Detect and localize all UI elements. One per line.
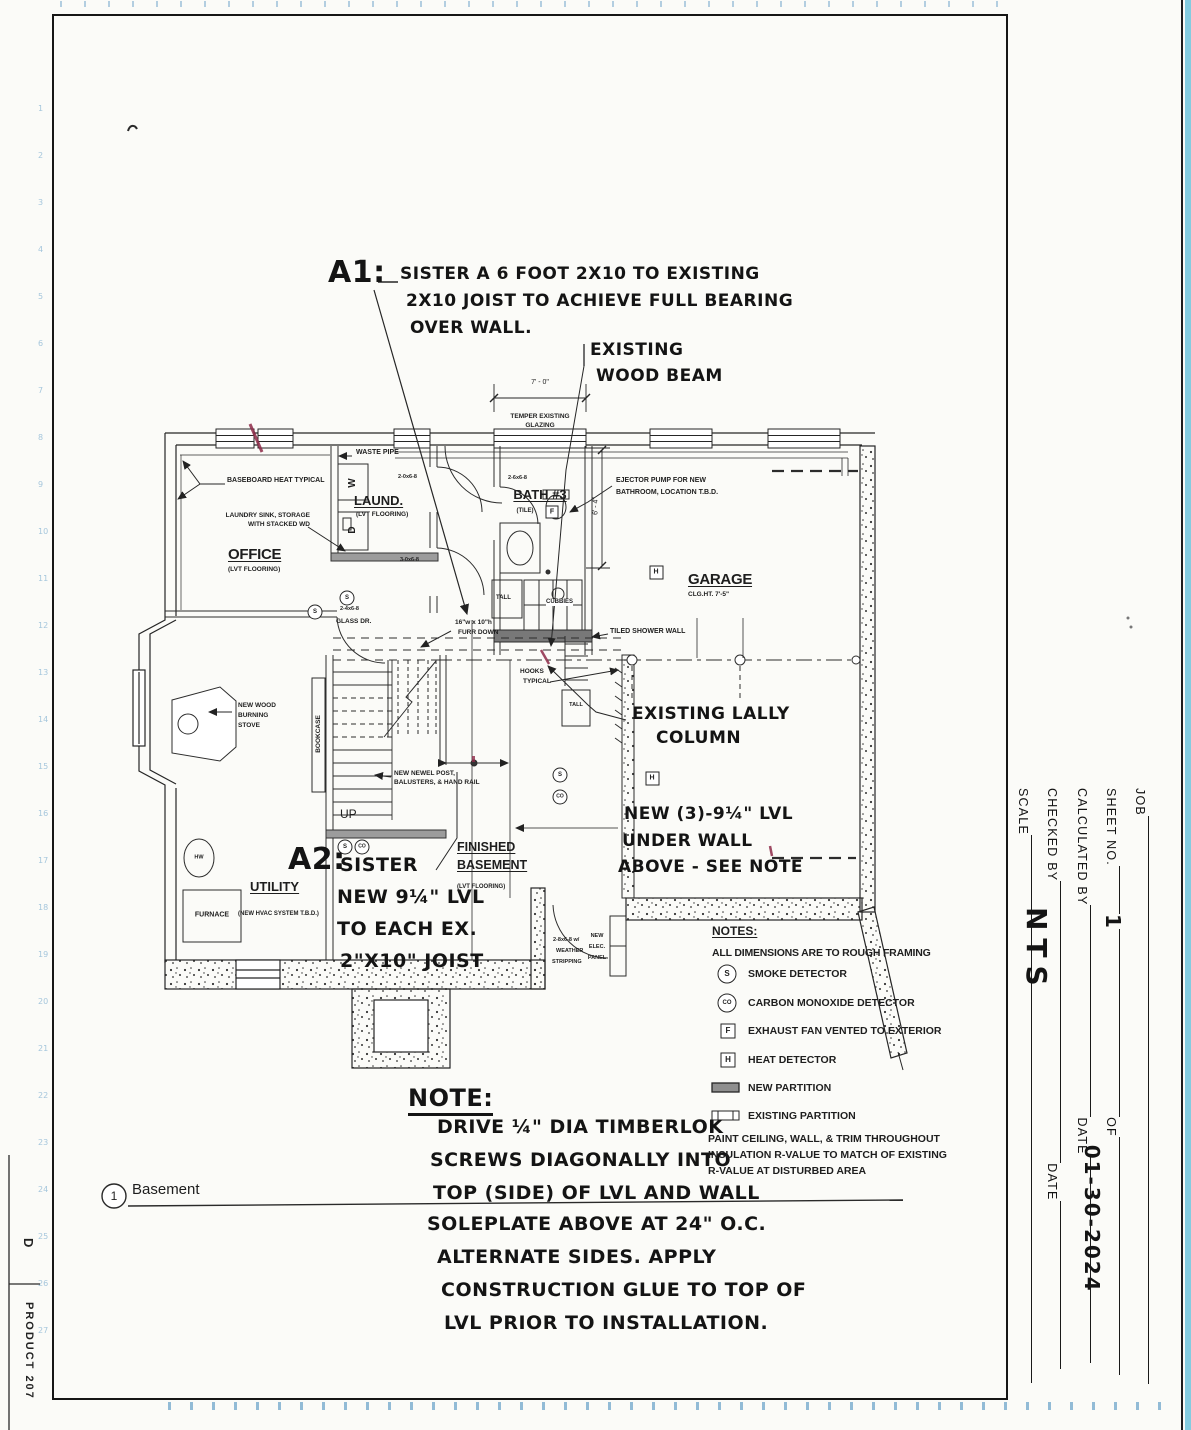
legend-co-label: CARBON MONOXIDE DETECTOR bbox=[748, 997, 915, 1009]
room-bath: BATH #3 bbox=[513, 488, 566, 503]
stove-label-2: BURNING bbox=[238, 712, 268, 719]
note-line-1: DRIVE ¼" DIA TIMBERLOK bbox=[437, 1118, 723, 1137]
dryer-label: D bbox=[348, 526, 358, 533]
a2-note-line-1: SISTER bbox=[340, 856, 418, 875]
exhaust-fan-icon: F bbox=[550, 509, 554, 516]
room-finished-1: FINISHED bbox=[457, 840, 515, 854]
newel-label-2: BALUSTERS, & HAND RAIL bbox=[394, 779, 480, 786]
furr-down-label-1: 16"w x 10"h bbox=[455, 619, 492, 626]
temper-glazing-label-2: GLAZING bbox=[525, 422, 554, 429]
beam-centerline bbox=[333, 471, 860, 858]
hooks-label-1: HOOKS bbox=[520, 668, 544, 675]
legend-smoke-icon: S bbox=[724, 970, 729, 978]
laundry-sink-label-1: LAUNDRY SINK, STORAGE bbox=[226, 512, 310, 519]
elec-label-1: NEW bbox=[591, 933, 604, 939]
date-value: 01-30-2024 bbox=[1080, 1145, 1104, 1293]
a2-note-line-2: NEW 9¼" LVL bbox=[337, 888, 485, 907]
bookcase-label: BOOKCASE bbox=[316, 715, 323, 753]
a1-note-line-1: SISTER A 6 FOOT 2X10 TO EXISTING bbox=[400, 266, 760, 283]
titleblock-job-row: JOB bbox=[1133, 788, 1150, 1384]
legend-heat-label: HEAT DETECTOR bbox=[748, 1054, 836, 1066]
sheet-no-line bbox=[1109, 866, 1120, 914]
co-detector-icon: CO bbox=[358, 845, 366, 850]
doors bbox=[337, 446, 608, 958]
newel-label-1: NEW NEWEL POST, bbox=[394, 770, 455, 777]
note-title: NOTE: bbox=[408, 1086, 493, 1116]
checked-by-label: CHECKED BY bbox=[1045, 788, 1062, 881]
stairs bbox=[333, 660, 436, 820]
note-line-2: SCREWS DIAGONALLY INTO bbox=[430, 1151, 731, 1170]
calculated-by-label: CALCULATED BY bbox=[1075, 788, 1092, 905]
room-garage-sub: CLG.HT. 7'-5" bbox=[688, 591, 729, 598]
weather-label-2: WEATHER bbox=[556, 948, 583, 954]
legend-new-partition-label: NEW PARTITION bbox=[748, 1082, 831, 1094]
scale-label: SCALE bbox=[1016, 788, 1033, 835]
date2-line bbox=[1050, 1201, 1061, 1369]
note-line-6: CONSTRUCTION GLUE TO TOP OF bbox=[441, 1281, 806, 1300]
smoke-detector-icon: S bbox=[345, 595, 349, 601]
wood-beam-note-2: WOOD BEAM bbox=[596, 368, 723, 385]
edge-letter: D bbox=[21, 1238, 36, 1247]
of-line bbox=[1109, 1137, 1120, 1375]
room-laundry-sub: (LVT FLOORING) bbox=[356, 511, 408, 518]
a1-note-line-2: 2X10 JOIST TO ACHIEVE FULL BEARING bbox=[406, 293, 793, 310]
scale-line: NTS bbox=[1021, 835, 1032, 1383]
new-lvl-note-3: ABOVE - SEE NOTE bbox=[618, 859, 803, 876]
heat-detector-icon: H bbox=[653, 569, 658, 576]
note-line-4: SOLEPLATE ABOVE AT 24" O.C. bbox=[427, 1215, 766, 1234]
paint-note-2: INSULATION R-VALUE TO MATCH OF EXISTING bbox=[708, 1149, 947, 1161]
glass-door-size: 2-4x6-8 bbox=[340, 606, 359, 612]
a2-note-line-3: TO EACH EX. bbox=[337, 920, 477, 939]
paint-note-3: R-VALUE AT DISTURBED AREA bbox=[708, 1165, 866, 1177]
tiled-shower-label: TILED SHOWER WALL bbox=[610, 628, 685, 636]
waste-pipe-label: WASTE PIPE bbox=[356, 449, 399, 457]
washer-label: W bbox=[348, 478, 358, 487]
baseboard-label: BASEBOARD HEAT TYPICAL bbox=[227, 477, 324, 485]
tall-cabinet-label: TALL bbox=[496, 595, 511, 602]
heat-detector-icon: H bbox=[649, 775, 654, 782]
weather-label-1: 2-8x6-8 w/ bbox=[553, 937, 579, 943]
weather-label-3: STRIPPING bbox=[552, 959, 582, 965]
legend-fan-icon: F bbox=[726, 1027, 731, 1035]
ejector-label-1: EJECTOR PUMP FOR NEW bbox=[616, 477, 706, 485]
a2-callout: A2: bbox=[288, 845, 346, 875]
door-size-laundry-bottom: 3-0x6-8 bbox=[400, 557, 419, 563]
scale-value: NTS bbox=[1020, 907, 1053, 994]
stove-label-1: NEW WOOD bbox=[238, 702, 276, 709]
temper-glazing-label-1: TEMPER EXISTING bbox=[510, 413, 569, 420]
titleblock-sheet-row: SHEET NO. 1 OF bbox=[1101, 788, 1121, 1375]
hw-label: HW bbox=[194, 855, 203, 861]
room-garage: GARAGE bbox=[688, 571, 752, 588]
room-bath-sub: (TILE) bbox=[517, 508, 534, 515]
job-line bbox=[1138, 816, 1149, 1384]
detail-number: 1 bbox=[111, 1190, 118, 1202]
note-line-5: ALTERNATE SIDES. APPLY bbox=[437, 1248, 716, 1267]
room-utility: UTILITY bbox=[250, 880, 299, 895]
titleblock-checked-row: CHECKED BY DATE bbox=[1045, 788, 1062, 1369]
note-line-3: TOP (SIDE) OF LVL AND WALL bbox=[433, 1184, 760, 1203]
stove-label-3: STOVE bbox=[238, 722, 260, 729]
legend-symbols bbox=[712, 965, 739, 1120]
legend-heat-icon: H bbox=[725, 1056, 731, 1064]
a1-callout: A1: bbox=[328, 258, 386, 288]
ejector-label-2: BATHROOM, LOCATION T.B.D. bbox=[616, 489, 718, 497]
date2-label: DATE bbox=[1045, 1163, 1062, 1200]
titleblock-scale-row: SCALE NTS bbox=[1016, 788, 1033, 1383]
lally-note-2: COLUMN bbox=[656, 730, 741, 747]
cubbies-label: CUBBIES bbox=[546, 599, 573, 606]
scanned-blueprint-sheet: 1234567891011121314151617181920212223242… bbox=[0, 0, 1191, 1430]
furr-down-label-2: FURR DOWN bbox=[458, 629, 498, 636]
date-line: 01-30-2024 bbox=[1080, 1155, 1091, 1363]
new-lvl-note-2: UNDER WALL bbox=[622, 833, 753, 850]
glass-door-label: GLASS DR. bbox=[336, 618, 371, 625]
sheet-no-line-2 bbox=[1109, 929, 1120, 1117]
legend-smoke-label: SMOKE DETECTOR bbox=[748, 968, 847, 980]
paint-note-1: PAINT CEILING, WALL, & TRIM THROUGHOUT bbox=[708, 1133, 940, 1145]
hooks-label-2: TYPICAL bbox=[523, 678, 551, 685]
detail-title: Basement bbox=[132, 1181, 200, 1198]
furnace-label: FURNACE bbox=[195, 912, 229, 919]
lally-note-1: EXISTING LALLY bbox=[632, 706, 790, 723]
new-lvl-note-1: NEW (3)-9¼" LVL bbox=[624, 806, 793, 823]
smoke-detector-icon: S bbox=[313, 609, 317, 615]
door-size-laundry-top: 2-0x6-8 bbox=[398, 474, 417, 480]
smoke-detector-icon: S bbox=[558, 772, 562, 778]
dim-7-0: 7' - 0" bbox=[531, 379, 549, 387]
a1-note-line-3: OVER WALL. bbox=[410, 320, 532, 337]
room-finished-2: BASEMENT bbox=[457, 858, 527, 872]
room-utility-sub: (NEW HVAC SYSTEM T.B.D.) bbox=[238, 911, 319, 918]
a2-note-line-4: 2"X10" JOIST bbox=[340, 952, 484, 971]
of-label: OF bbox=[1104, 1117, 1121, 1137]
sheet-no-value: 1 bbox=[1101, 914, 1125, 929]
elec-label-3: PANEL bbox=[588, 955, 606, 961]
co-detector-icon: CO bbox=[556, 795, 564, 800]
legend-existing-partition-label: EXISTING PARTITION bbox=[748, 1110, 856, 1122]
room-office-sub: (LVT FLOORING) bbox=[228, 566, 280, 573]
laundry-sink-label-2: WITH STACKED WD bbox=[248, 521, 310, 528]
job-label: JOB bbox=[1133, 788, 1150, 816]
note-line-7: LVL PRIOR TO INSTALLATION. bbox=[444, 1314, 768, 1333]
room-laundry: LAUND. bbox=[354, 494, 403, 509]
wood-beam-note-1: EXISTING bbox=[590, 342, 683, 359]
up-label: UP bbox=[340, 808, 357, 822]
room-office: OFFICE bbox=[228, 546, 281, 563]
titleblock-calculated-row: CALCULATED BY DATE 01-30-2024 bbox=[1075, 788, 1092, 1363]
door-size-bath: 2-6x6-8 bbox=[508, 475, 527, 481]
notes-title: NOTES: bbox=[712, 925, 757, 939]
product-label: PRODUCT 207 bbox=[23, 1302, 35, 1400]
notes-dimensions: ALL DIMENSIONS ARE TO ROUGH FRAMING bbox=[712, 947, 931, 959]
dim-6-4: 6' - 4" bbox=[593, 497, 600, 515]
elec-label-2: ELEC. bbox=[589, 944, 605, 950]
sheet-no-label: SHEET NO. bbox=[1104, 788, 1121, 866]
legend-fan-label: EXHAUST FAN VENTED TO EXTERIOR bbox=[748, 1025, 942, 1037]
legend-co-icon: CO bbox=[723, 1000, 732, 1006]
tall2-label: TALL bbox=[569, 702, 583, 708]
calculated-by-line bbox=[1080, 905, 1091, 1117]
